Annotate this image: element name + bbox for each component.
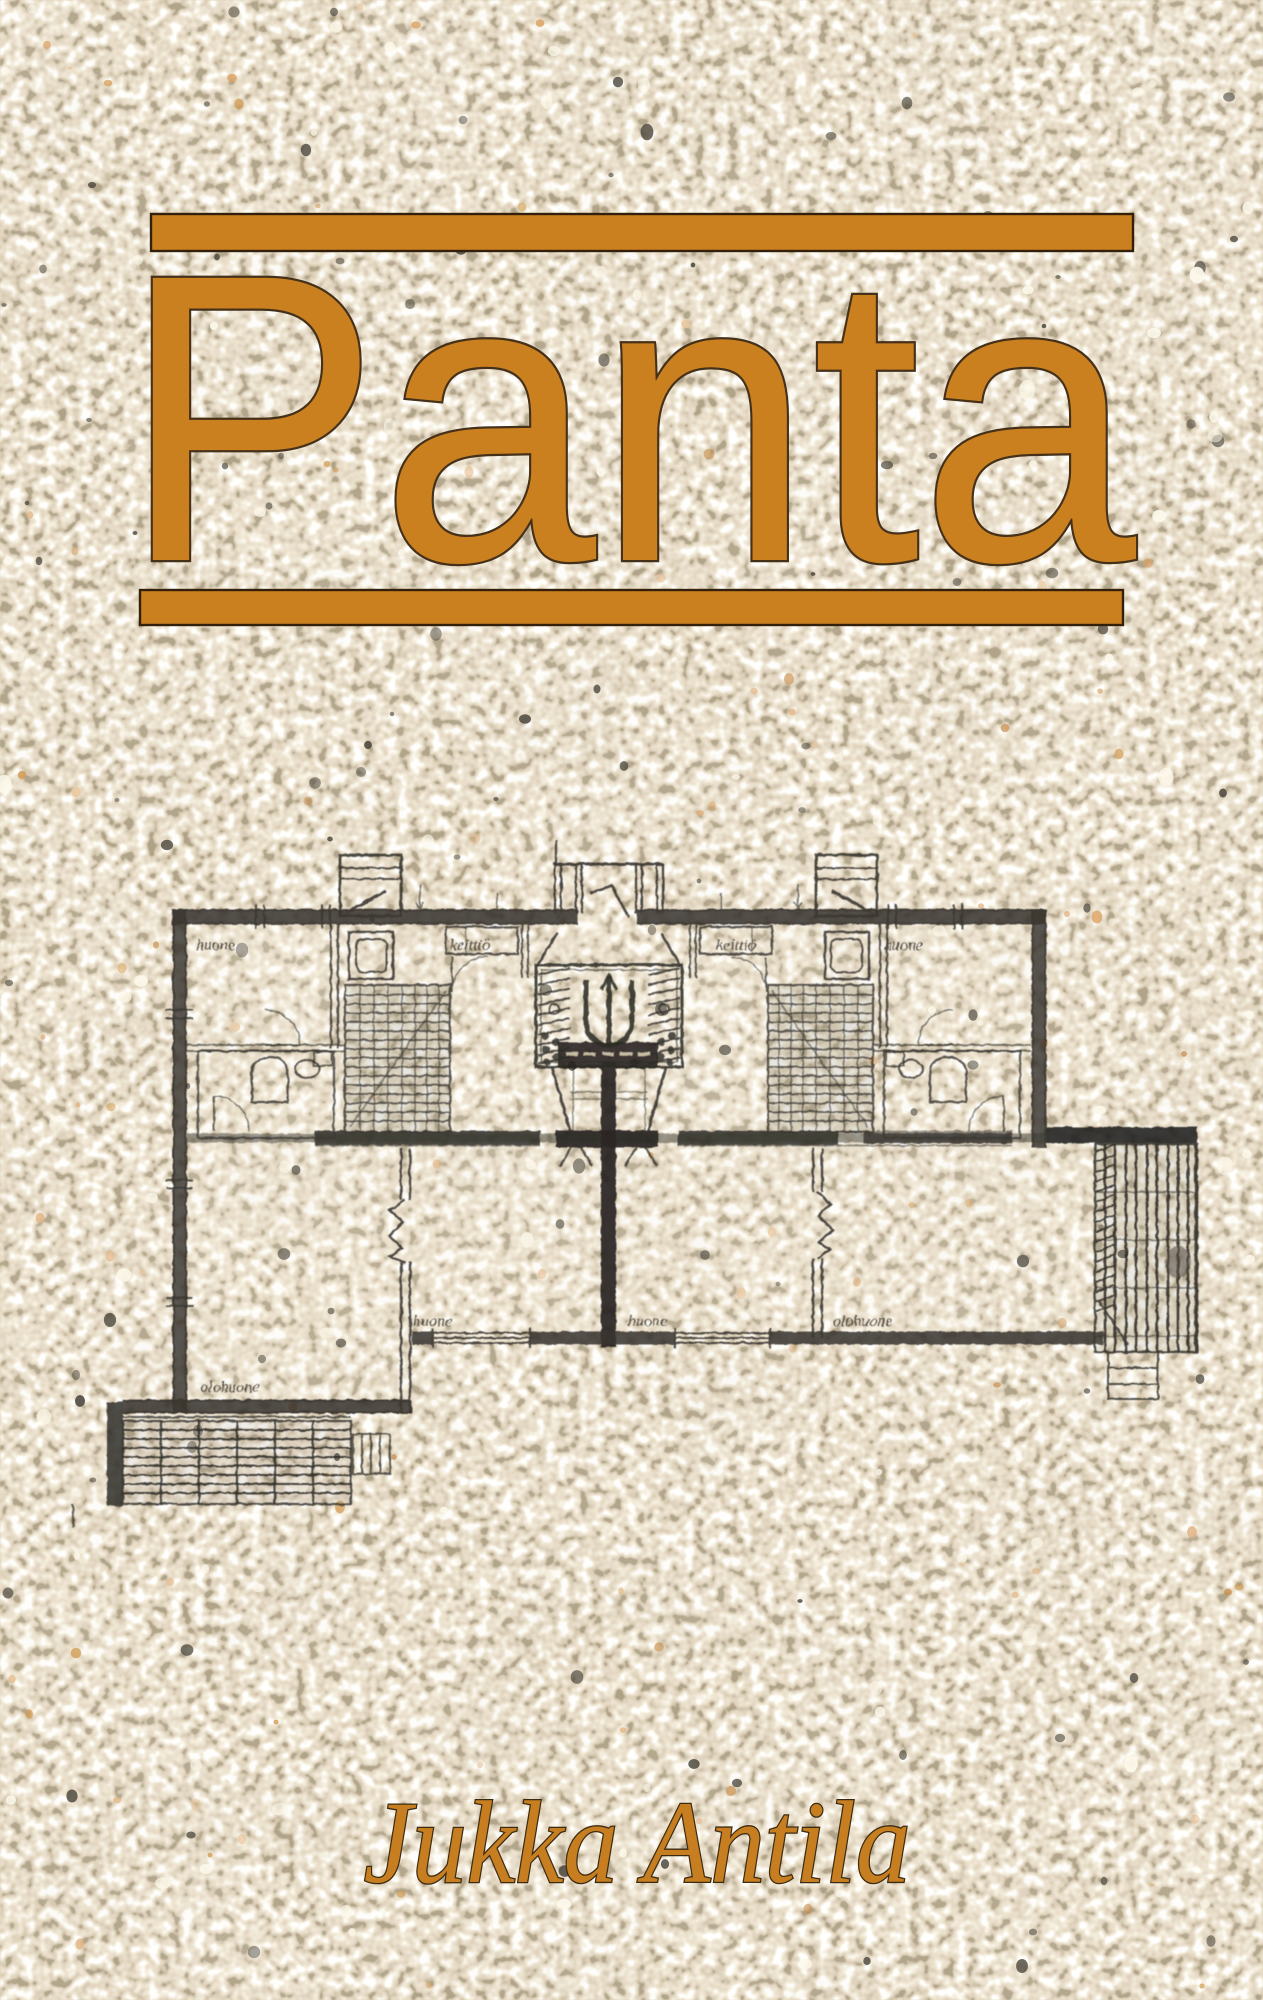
svg-text:olohuone: olohuone: [833, 1313, 893, 1330]
svg-text:huone: huone: [196, 937, 235, 954]
svg-text:Panta: Panta: [121, 189, 1138, 647]
svg-text:keittiö: keittiö: [450, 937, 490, 954]
svg-text:huone: huone: [628, 1313, 667, 1330]
svg-text:olohuone: olohuone: [200, 1379, 260, 1396]
svg-text:huone: huone: [884, 937, 923, 954]
svg-text:keittiö: keittiö: [716, 937, 756, 954]
svg-text:huone: huone: [413, 1313, 452, 1330]
svg-text:Jukka Antila: Jukka Antila: [364, 1777, 911, 1908]
